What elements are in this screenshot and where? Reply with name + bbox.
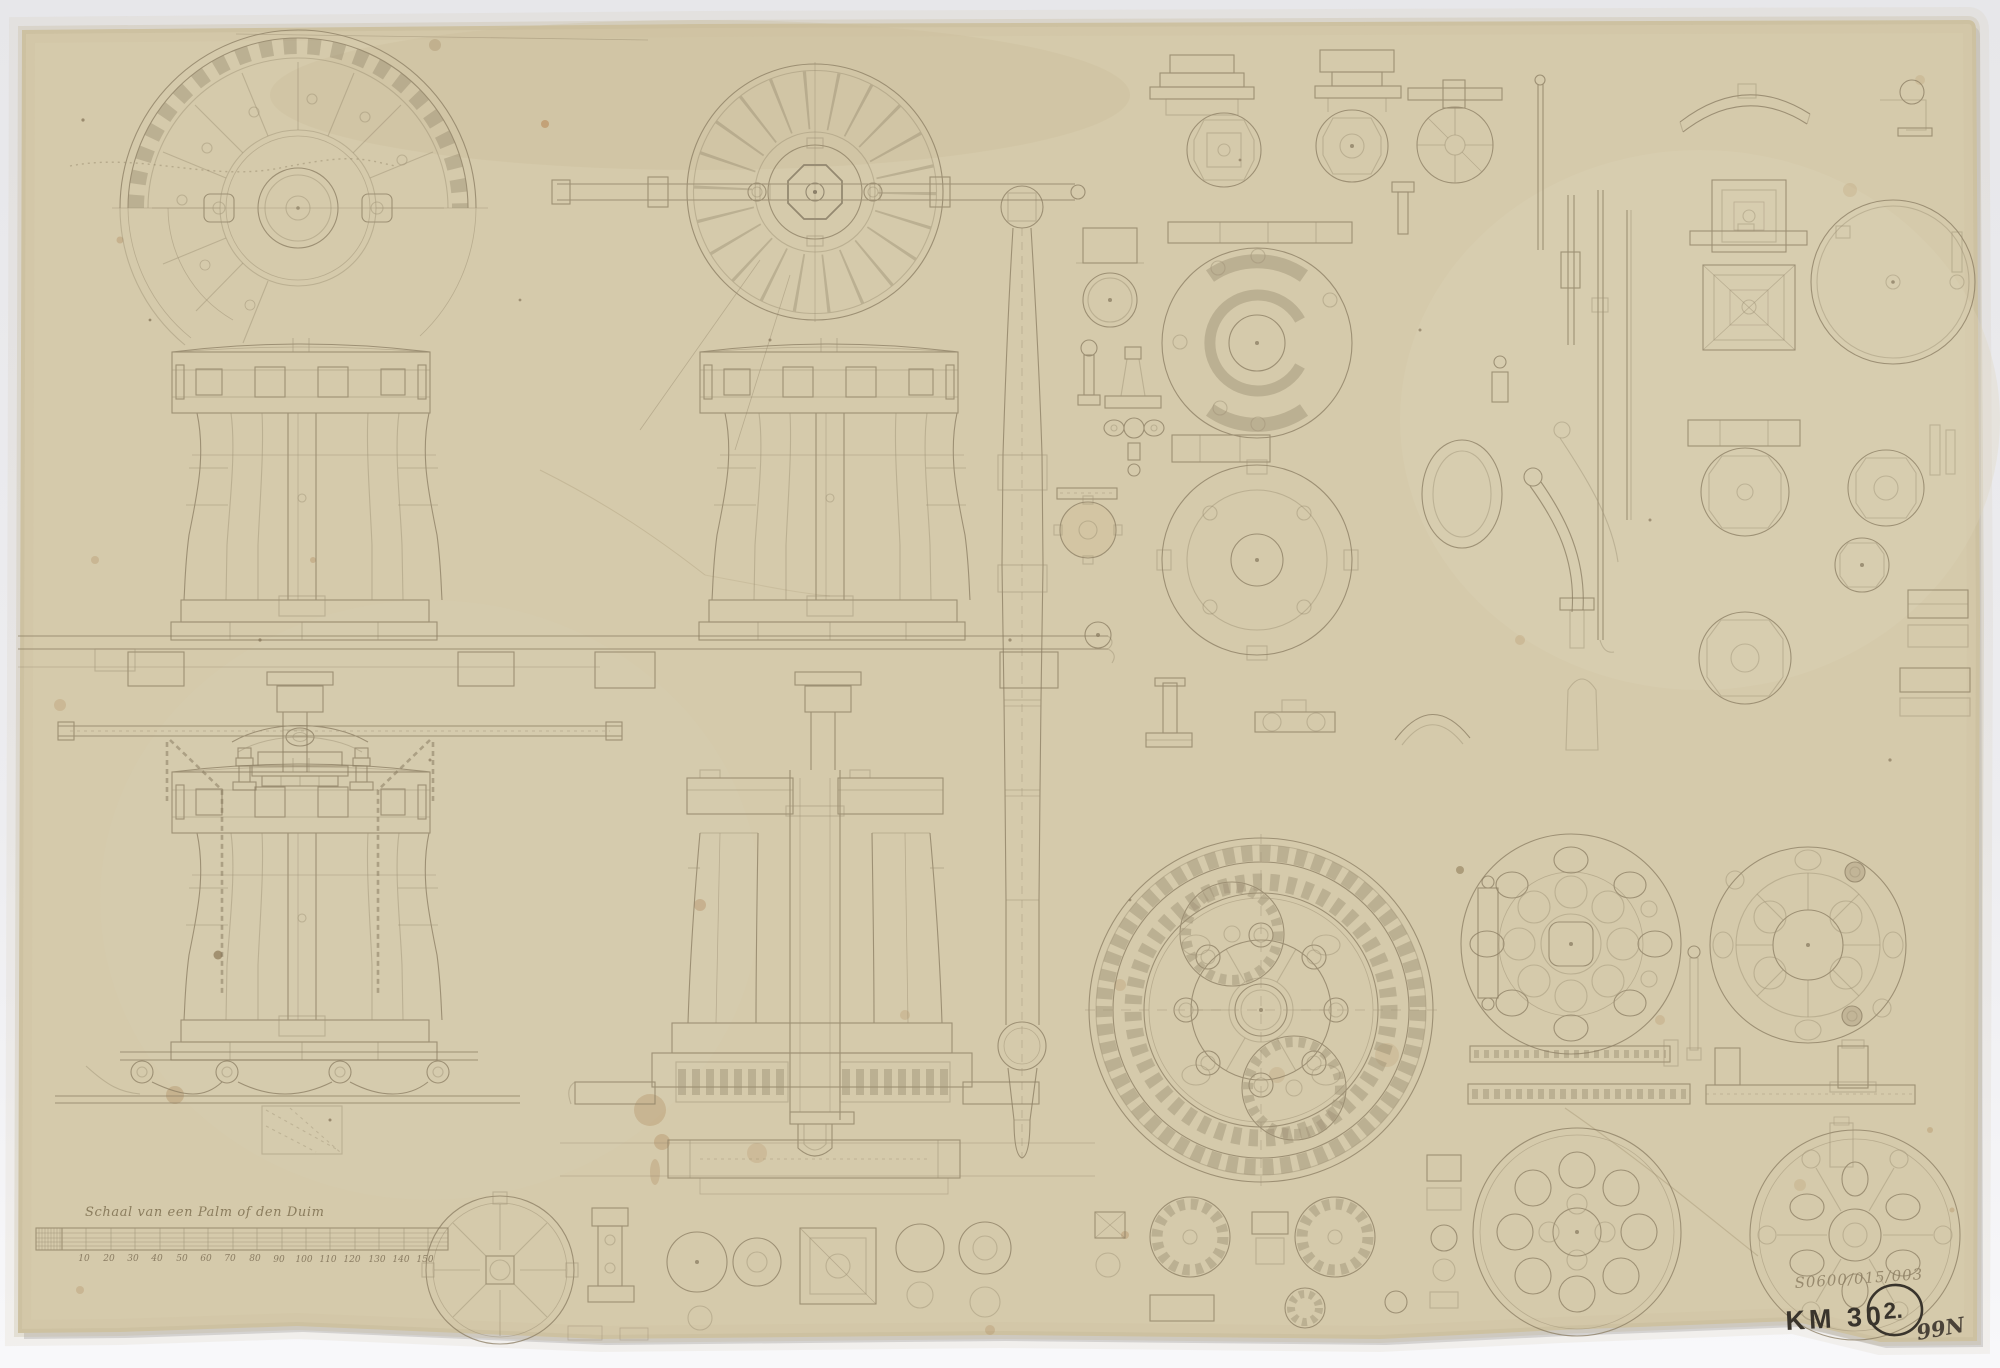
scale-tick-label: 110 (319, 1255, 336, 1265)
scale-tick-label: 150 (416, 1255, 433, 1265)
scale-tick-label: 100 (295, 1255, 312, 1265)
scale-tick-label: 80 (249, 1254, 261, 1264)
scale-tick-label: 10 (78, 1254, 90, 1264)
scale-tick-label: 20 (102, 1254, 115, 1264)
scale-tick-label: 30 (127, 1254, 139, 1264)
scale-tick-label: 90 (273, 1255, 285, 1265)
paper-sheet (18, 20, 2000, 1342)
scale-tick-label: 60 (200, 1254, 212, 1264)
sheet-number: 2. (1883, 1297, 1904, 1324)
scale-tick-label: 50 (176, 1254, 188, 1264)
scale-caption: Schaal van een Palm of den Duim (85, 1205, 325, 1220)
scale-tick-labels: 10 20 30 40 50 60 70 80 90 100 110 120 1… (78, 1254, 434, 1265)
scale-tick-label: 40 (150, 1254, 163, 1264)
scanned-drawing-sheet: Schaal van een Palm of den Duim 10 20 30… (0, 0, 2000, 1368)
drawing-canvas: Schaal van een Palm of den Duim 10 20 30… (0, 0, 2000, 1368)
scale-tick-label: 70 (224, 1254, 236, 1264)
scale-tick-label: 140 (392, 1255, 409, 1265)
scale-tick-label: 120 (343, 1255, 360, 1265)
scale-tick-label: 130 (368, 1255, 385, 1265)
